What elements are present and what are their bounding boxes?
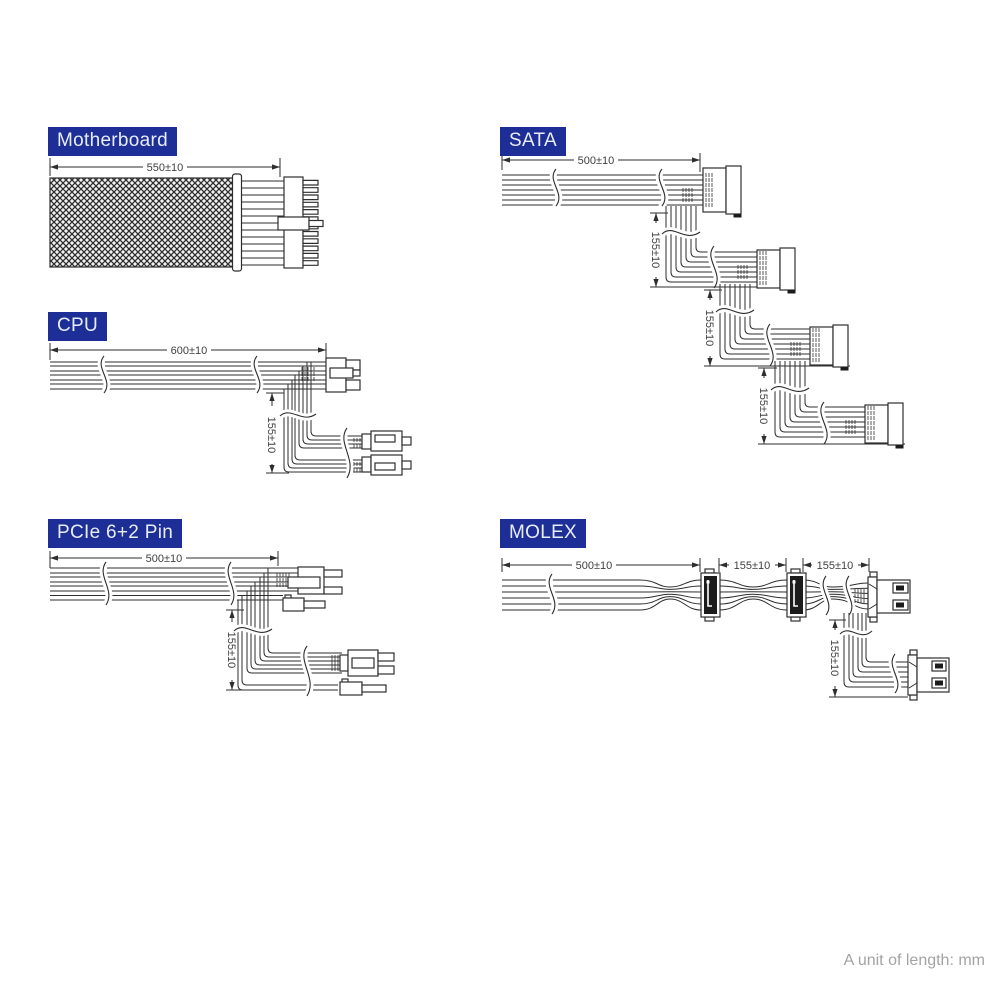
crimp-ticks	[302, 367, 314, 381]
connector-tab	[910, 695, 917, 700]
branch-wires	[720, 284, 810, 359]
connector-foot	[788, 290, 796, 294]
wire-bundle	[50, 568, 298, 600]
connector-latch-tip	[353, 370, 360, 376]
connector-tab	[870, 572, 877, 577]
sata-diagram: 500±10 155±10	[502, 153, 905, 449]
connector-pin	[346, 380, 360, 390]
sata-connector-2	[757, 248, 796, 294]
cpu-length-dimension: 600±10	[50, 343, 326, 360]
cpu-branch-text: 155±10	[265, 417, 277, 454]
connector-tab	[910, 650, 917, 655]
wire-bundle	[502, 175, 703, 205]
molex-seg1-text: 155±10	[734, 560, 771, 572]
connector-foot	[734, 214, 742, 218]
sata-connector-3	[810, 325, 849, 371]
connector-latch	[288, 577, 320, 588]
motherboard-length-dimension: 550±10	[50, 158, 280, 177]
pcie-6plus2-connector-2	[340, 650, 394, 695]
wire-bundle	[50, 362, 326, 389]
sata-label: SATA	[500, 127, 566, 156]
connector-latch	[330, 368, 353, 378]
cpu-8pin-connector	[326, 358, 360, 392]
inline-connector-2	[787, 569, 806, 621]
connector-collar	[362, 434, 371, 449]
sata-seg1-text: 155±10	[649, 232, 661, 269]
motherboard-label: Motherboard	[48, 127, 177, 156]
connector-pin	[378, 666, 394, 674]
pcie-length-dimension: 500±10	[50, 551, 278, 568]
connector-pin	[402, 461, 411, 469]
molex-seg2-dimension: 155±10	[803, 558, 869, 572]
sata-length-text: 500±10	[578, 155, 615, 167]
connector-collar	[362, 457, 371, 472]
connector-pin	[324, 587, 342, 594]
sleeve-end-cap	[233, 174, 242, 271]
connector-latch	[278, 217, 309, 230]
pcie-length-text: 500±10	[146, 553, 183, 565]
unit-note: A unit of length: mm	[844, 952, 985, 970]
atx-24pin-connector	[278, 177, 323, 268]
molex-seg1-dimension: 155±10	[719, 558, 786, 572]
molex-branch-text: 155±10	[828, 640, 840, 677]
molex-connector-2	[908, 650, 949, 700]
pcie-branch-text: 155±10	[225, 632, 237, 669]
braided-sleeve	[50, 178, 233, 267]
connector-latch	[352, 658, 374, 668]
cable-spec-diagram: 550±10 600±10	[0, 0, 1000, 1000]
connector-tab	[870, 617, 877, 622]
connector-flange	[908, 655, 917, 695]
connector-key	[793, 581, 796, 584]
connector-pin	[378, 653, 394, 661]
molex-diagram: 500±10 155±10 155±10	[502, 558, 949, 700]
two-pin-body	[340, 682, 362, 695]
cpu-diagram: 600±10	[50, 343, 411, 478]
connector-flange	[868, 577, 877, 617]
molex-length-dimension: 500±10	[502, 558, 700, 572]
molex-seg2-text: 155±10	[817, 560, 854, 572]
pcie-6plus2-connector	[283, 567, 342, 611]
molex-connector-1	[868, 572, 910, 622]
molex-label: MOLEX	[500, 519, 586, 548]
cpu-4plus4-connector	[362, 431, 411, 475]
motherboard-diagram: 550±10	[50, 158, 323, 271]
crimp-ticks	[354, 438, 360, 472]
pcie-diagram: 500±10	[50, 551, 394, 696]
two-pin-pin	[362, 685, 386, 692]
connector-pin	[324, 570, 342, 577]
pcie-branch-dimension: 155±10	[225, 610, 246, 690]
branch-wires	[775, 361, 865, 437]
connector-pin	[402, 437, 411, 445]
wire-bundle-mid	[719, 580, 787, 610]
inline-connector-1	[701, 569, 720, 621]
cpu-label: CPU	[48, 312, 107, 341]
two-pin-body	[283, 598, 304, 611]
cpu-branch-dimension: 155±10	[265, 393, 289, 473]
connector-foot	[841, 367, 849, 371]
crimp-ticks	[855, 589, 864, 603]
connector-latch-tip	[309, 221, 323, 227]
sata-seg3-text: 155±10	[757, 388, 769, 425]
crimp-ticks	[277, 573, 289, 587]
sata-seg2-text: 155±10	[703, 310, 715, 347]
wire-bundle	[502, 580, 701, 610]
sata-connector-1	[703, 166, 742, 218]
connector-latch	[375, 463, 395, 470]
molex-length-text: 500±10	[576, 560, 613, 572]
two-pin-pin	[304, 601, 325, 608]
connector-latch	[375, 435, 395, 442]
motherboard-length-text: 550±10	[147, 162, 184, 174]
connector-key	[707, 581, 710, 584]
cpu-length-text: 600±10	[171, 345, 208, 357]
sata-connector-4	[865, 403, 904, 449]
connector-collar	[340, 655, 348, 671]
cable-break-marks	[234, 628, 310, 696]
connector-foot	[896, 445, 904, 449]
pcie-label: PCIe 6+2 Pin	[48, 519, 182, 548]
